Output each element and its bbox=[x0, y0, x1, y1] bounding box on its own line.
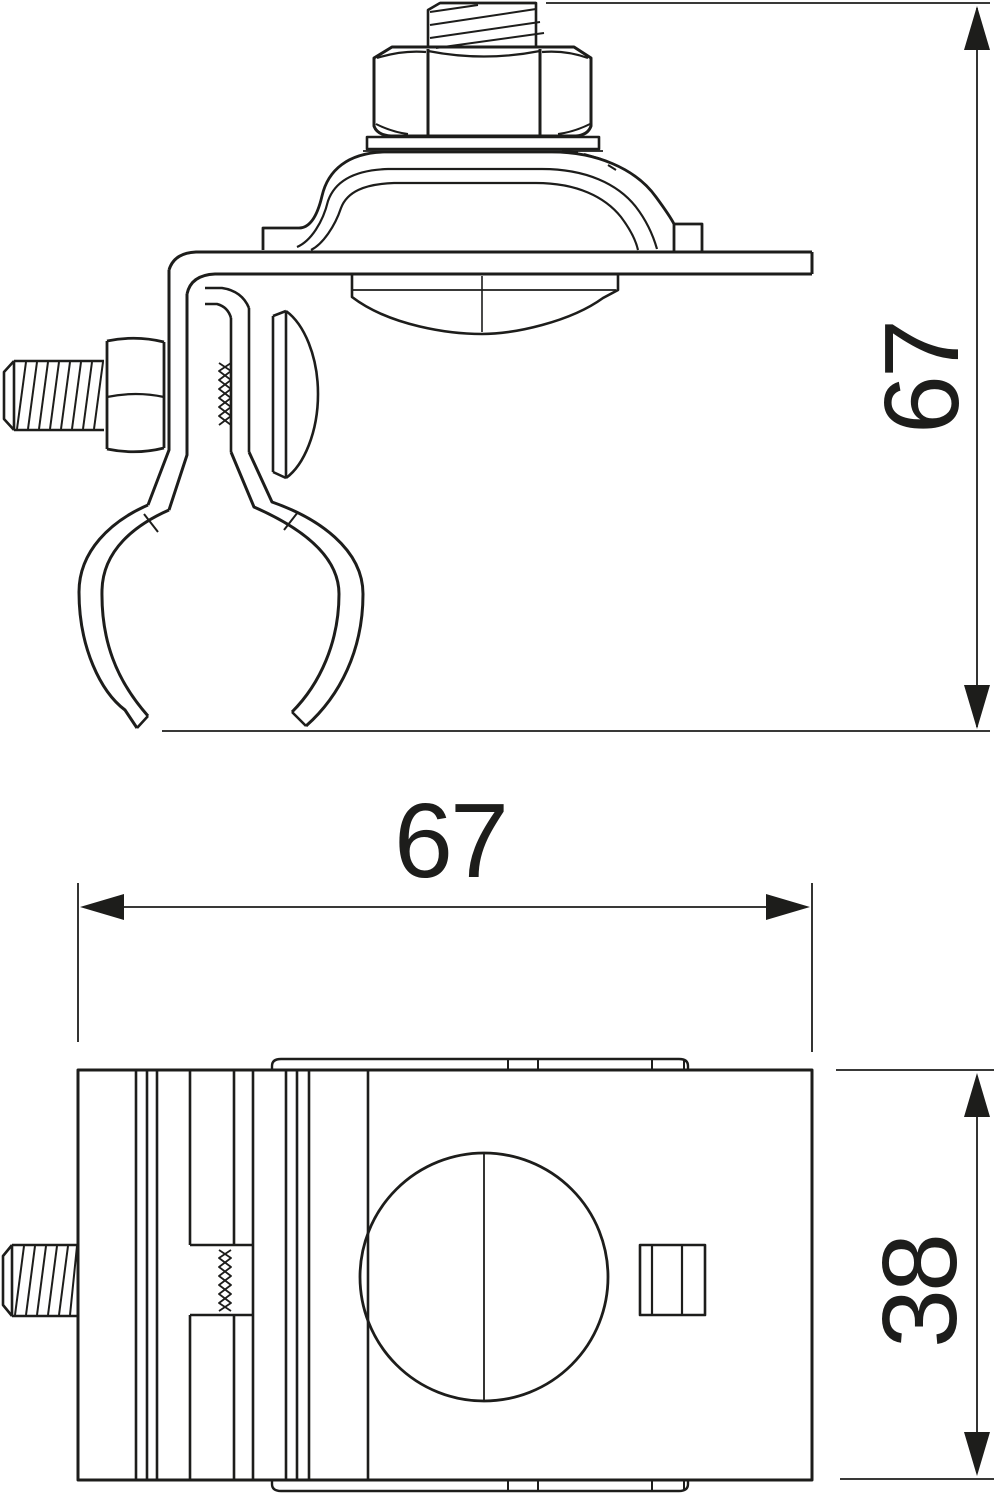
dimension-front-height: 38 bbox=[836, 1070, 994, 1479]
thread-line bbox=[70, 1246, 77, 1315]
ring-left-tip-cut bbox=[137, 716, 148, 728]
pipe-clamp-ring bbox=[79, 452, 363, 728]
thread-line bbox=[59, 1246, 68, 1315]
stud-thread-lines bbox=[430, 5, 544, 48]
bottom-lip bbox=[272, 1480, 688, 1491]
spherical-washer-outline bbox=[352, 274, 618, 334]
threaded-stud bbox=[428, 3, 544, 48]
thread-section bbox=[219, 363, 231, 425]
lip-tick bbox=[508, 1480, 684, 1491]
bolt-tip bbox=[4, 361, 14, 430]
thread-line bbox=[72, 362, 81, 429]
thread-line bbox=[48, 1246, 57, 1315]
bracket-leg-inner bbox=[169, 294, 187, 510]
thread-line bbox=[28, 362, 37, 429]
plate-top-edge bbox=[169, 252, 812, 270]
washer-outline bbox=[367, 137, 599, 149]
strap-mid-line bbox=[297, 169, 657, 249]
thread-line bbox=[39, 362, 48, 429]
washer-top bbox=[363, 137, 603, 151]
flange-cap bbox=[273, 311, 286, 478]
square-line bbox=[652, 1245, 682, 1315]
arrow-right-icon bbox=[766, 894, 810, 920]
thread-line bbox=[17, 362, 26, 429]
plate-bottom-edge bbox=[187, 274, 812, 294]
dimension-label-front-width: 67 bbox=[394, 782, 506, 900]
dome-arc bbox=[286, 311, 318, 478]
top-lip bbox=[272, 1059, 688, 1070]
body-plate-lines bbox=[136, 1070, 368, 1480]
lip-ticks bbox=[508, 1059, 684, 1491]
strap-inner-line bbox=[311, 183, 638, 250]
bolt-thread-lines bbox=[15, 1246, 77, 1315]
nut-top-edge bbox=[107, 338, 164, 342]
thread-line bbox=[37, 1246, 46, 1315]
bracket-leg-outer bbox=[148, 270, 169, 505]
hex-nut-top bbox=[374, 47, 591, 136]
dimension-label-side-height: 67 bbox=[863, 322, 981, 434]
ring-left-inner bbox=[102, 510, 169, 716]
dome-head-screw bbox=[273, 311, 318, 478]
clamp-bends bbox=[205, 288, 249, 452]
nut-bottom-edge bbox=[107, 448, 164, 452]
ring-right-inner bbox=[231, 452, 339, 712]
saddle-strap bbox=[263, 150, 702, 252]
dimension-front-width: 67 bbox=[78, 782, 812, 1052]
arrow-down-icon bbox=[964, 685, 990, 729]
dimension-label-front-height: 38 bbox=[861, 1236, 979, 1348]
thread-line bbox=[26, 1246, 35, 1315]
bend-inner bbox=[205, 304, 231, 318]
lip-tick bbox=[508, 1059, 684, 1070]
bolt-tip bbox=[3, 1245, 12, 1316]
side-bolt bbox=[4, 338, 164, 452]
slot-thread bbox=[219, 1250, 231, 1311]
square-outline bbox=[640, 1245, 705, 1315]
strap-foot-right bbox=[674, 224, 702, 252]
front-view: 67 38 bbox=[3, 782, 994, 1491]
ring-right-tip-cut bbox=[292, 712, 306, 726]
ring-right-outer bbox=[249, 452, 363, 726]
thread-line bbox=[15, 1246, 24, 1315]
technical-drawing: 67 bbox=[0, 0, 999, 1500]
thread-line bbox=[61, 362, 70, 429]
body-outline bbox=[78, 1070, 812, 1480]
drawing-canvas: 67 bbox=[0, 0, 999, 1500]
ring-left-outer bbox=[79, 505, 148, 728]
bolt-slot bbox=[190, 1245, 253, 1315]
thread-line bbox=[430, 9, 536, 25]
spherical-washer bbox=[352, 274, 618, 334]
arrow-up-icon bbox=[964, 1073, 990, 1117]
clamp-body bbox=[78, 1059, 812, 1491]
thread-line bbox=[94, 362, 103, 429]
nut-mid-line bbox=[107, 394, 164, 397]
thread-line bbox=[83, 362, 92, 429]
side-view: 67 bbox=[4, 3, 990, 731]
bolt-end-square bbox=[640, 1245, 705, 1315]
nut-outline bbox=[374, 47, 591, 136]
bolt-thread-lines bbox=[17, 362, 103, 429]
arrow-down-icon bbox=[964, 1432, 990, 1476]
arrow-up-icon bbox=[964, 6, 990, 50]
front-bolt bbox=[3, 1245, 78, 1316]
arrow-left-icon bbox=[80, 894, 124, 920]
hex-nut-side bbox=[107, 338, 164, 452]
thread-line bbox=[50, 362, 59, 429]
pipe-hole bbox=[360, 1153, 608, 1401]
nut-chamfer-arc bbox=[428, 51, 540, 57]
